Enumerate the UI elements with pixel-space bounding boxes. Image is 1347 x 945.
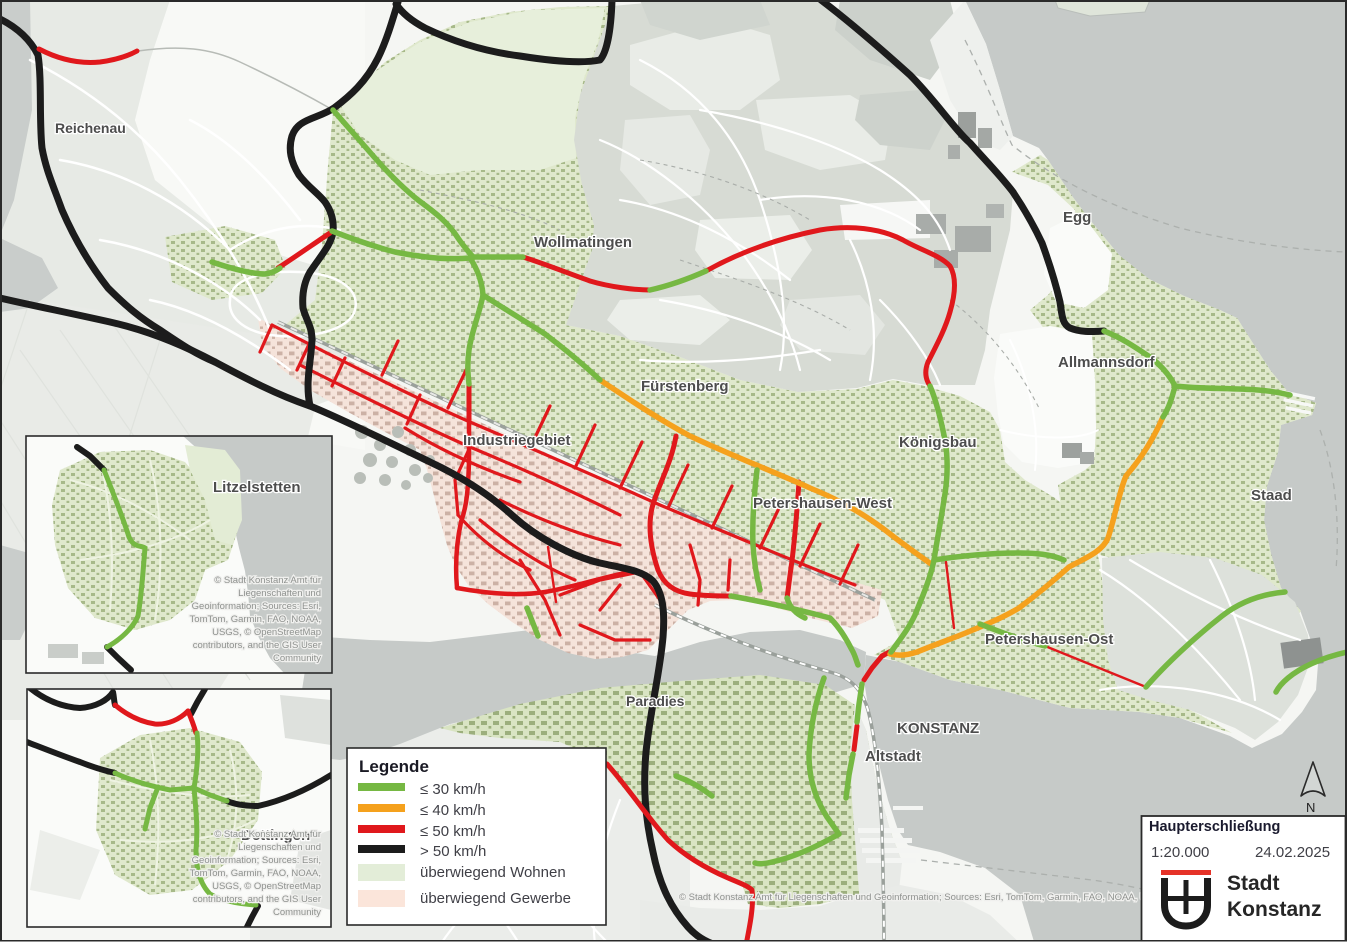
svg-text:© Stadt Konstanz Amt für: © Stadt Konstanz Amt für (214, 829, 321, 840)
svg-text:USGS, © OpenStreetMap: USGS, © OpenStreetMap (212, 627, 321, 638)
svg-text:© Stadt Konstanz Amt für Liege: © Stadt Konstanz Amt für Liegenschaften … (679, 892, 1161, 903)
svg-text:überwiegend Wohnen: überwiegend Wohnen (420, 864, 566, 881)
svg-text:24.02.2025: 24.02.2025 (1255, 844, 1330, 861)
svg-text:© Stadt Konstanz Amt für: © Stadt Konstanz Amt für (214, 575, 321, 586)
svg-text:contributors, and the GIS User: contributors, and the GIS User (193, 894, 321, 905)
svg-text:Königsbau: Königsbau (899, 434, 977, 451)
svg-text:Geoinformation; Sources: Esri,: Geoinformation; Sources: Esri, (192, 855, 321, 866)
svg-text:Wollmatingen: Wollmatingen (534, 234, 632, 251)
svg-text:≤ 40 km/h: ≤ 40 km/h (420, 802, 486, 819)
svg-text:USGS, © OpenStreetMap: USGS, © OpenStreetMap (212, 881, 321, 892)
svg-text:Petershausen-West: Petershausen-West (753, 495, 892, 512)
svg-text:Industriegebiet: Industriegebiet (463, 432, 571, 449)
svg-text:Petershausen-Ost: Petershausen-Ost (985, 631, 1113, 648)
svg-text:≤ 50 km/h: ≤ 50 km/h (420, 823, 486, 840)
svg-text:Altstadt: Altstadt (865, 748, 921, 765)
svg-text:1:20.000: 1:20.000 (1151, 844, 1209, 861)
svg-text:KONSTANZ: KONSTANZ (897, 720, 979, 737)
svg-text:Fürstenberg: Fürstenberg (641, 378, 729, 395)
svg-text:Egg: Egg (1063, 209, 1091, 226)
svg-text:Paradies: Paradies (626, 693, 685, 709)
svg-text:Litzelstetten: Litzelstetten (213, 479, 301, 496)
svg-text:Stadt: Stadt (1227, 872, 1280, 895)
svg-text:Konstanz: Konstanz (1227, 898, 1322, 921)
svg-text:Staad: Staad (1251, 487, 1292, 504)
svg-text:contributors, and the GIS User: contributors, and the GIS User (193, 640, 321, 651)
svg-text:Allmannsdorf: Allmannsdorf (1058, 354, 1156, 371)
svg-text:≤ 30 km/h: ≤ 30 km/h (420, 781, 486, 798)
svg-text:Community: Community (273, 653, 321, 664)
svg-text:N: N (1306, 800, 1315, 815)
svg-text:Reichenau: Reichenau (55, 120, 126, 136)
svg-text:TomTom, Garmin, FAO, NOAA,: TomTom, Garmin, FAO, NOAA, (190, 868, 321, 879)
svg-text:Geoinformation; Sources: Esri,: Geoinformation; Sources: Esri, (192, 601, 321, 612)
svg-text:Haupterschließung: Haupterschließung (1149, 819, 1280, 835)
svg-text:Liegenschaften und: Liegenschaften und (238, 842, 321, 853)
svg-text:überwiegend Gewerbe: überwiegend Gewerbe (420, 890, 571, 907)
svg-text:Legende: Legende (359, 757, 429, 776)
svg-text:TomTom, Garmin, FAO, NOAA,: TomTom, Garmin, FAO, NOAA, (190, 614, 321, 625)
svg-text:> 50 km/h: > 50 km/h (420, 843, 486, 860)
svg-text:Community: Community (273, 907, 321, 918)
svg-text:Liegenschaften und: Liegenschaften und (238, 588, 321, 599)
